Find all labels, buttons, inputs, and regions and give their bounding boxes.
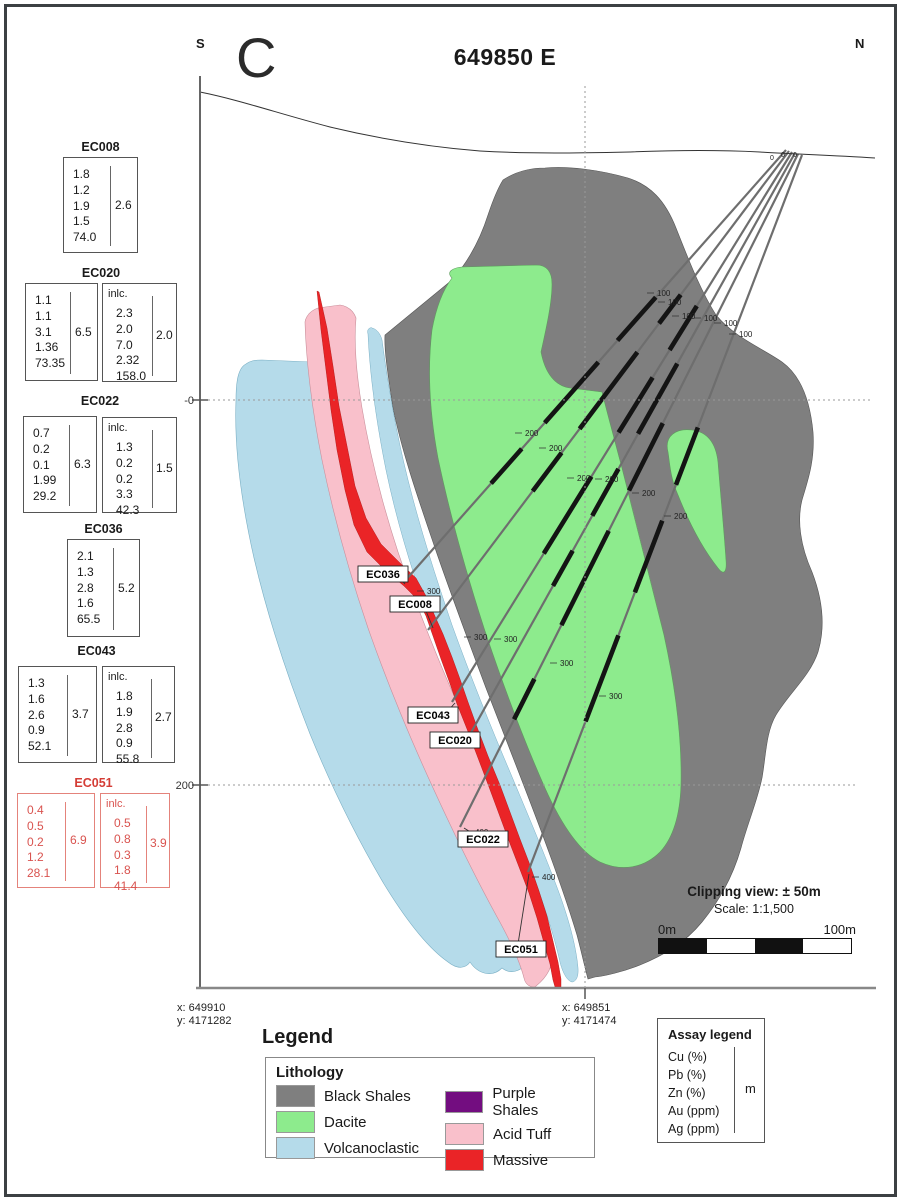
scale-label: Scale: 1:1,500 — [648, 902, 860, 916]
svg-text:300: 300 — [609, 692, 623, 701]
section-letter: C — [236, 30, 276, 86]
assay-values: 1.1 1.1 3.1 1.36 73.35 — [35, 293, 65, 372]
svg-text:200: 200 — [525, 429, 539, 438]
scale-bar-segment — [707, 939, 755, 953]
legend-label: Volcanoclastic — [324, 1140, 419, 1157]
assay-box-ec022-main: 0.7 0.2 0.1 1.99 29.2 6.3 — [23, 416, 97, 513]
svg-text:200: 200 — [176, 780, 194, 792]
included-label: inlc. — [108, 671, 128, 683]
svg-text:400: 400 — [542, 873, 556, 882]
assay-total: 2.0 — [156, 328, 173, 342]
hole-label-ec043: EC043 — [408, 707, 458, 723]
assay-legend: Assay legend Cu (%) Pb (%) Zn (%) Au (pp… — [657, 1018, 765, 1143]
assay-divider — [152, 430, 153, 508]
svg-text:100: 100 — [668, 298, 682, 307]
scale-bar-segment — [803, 939, 851, 953]
assay-divider — [110, 166, 111, 246]
hole-label-ec022: EC022 — [458, 831, 508, 847]
svg-text:EC036: EC036 — [366, 569, 400, 581]
assay-values: 2.1 1.3 2.8 1.6 65.5 — [77, 549, 100, 628]
legend-label: Black Shales — [324, 1088, 411, 1105]
assay-divider — [67, 675, 68, 756]
volcanoclastic-swatch — [276, 1137, 315, 1159]
svg-text:-0: -0 — [184, 395, 194, 407]
assay-box-ec008: 1.8 1.2 1.9 1.5 74.0 2.6 — [63, 157, 138, 253]
svg-text:EC008: EC008 — [398, 599, 432, 611]
purple-shales-swatch — [445, 1091, 483, 1113]
assay-legend-divider — [734, 1047, 735, 1133]
included-label: inlc. — [106, 798, 126, 810]
svg-text:EC051: EC051 — [504, 944, 538, 956]
svg-text:300: 300 — [474, 633, 488, 642]
legend-item: Massive — [445, 1149, 584, 1171]
assay-title-ec020: EC020 — [25, 266, 177, 280]
north-label: N — [855, 36, 864, 51]
assay-box-ec051-incl: inlc. 0.5 0.8 0.3 1.8 41.4 3.9 — [100, 793, 170, 888]
assay-box-ec020-main: 1.1 1.1 3.1 1.36 73.35 6.5 — [25, 283, 98, 381]
svg-text:200: 200 — [605, 475, 619, 484]
svg-text:300: 300 — [427, 587, 441, 596]
legend-item: Black Shales — [276, 1085, 445, 1107]
svg-text:200: 200 — [549, 444, 563, 453]
legend-label: Massive — [493, 1152, 548, 1169]
svg-text:300: 300 — [560, 659, 574, 668]
svg-text:100: 100 — [657, 289, 671, 298]
assay-divider — [151, 679, 152, 758]
legend-item: Volcanoclastic — [276, 1137, 445, 1159]
svg-text:100: 100 — [682, 312, 696, 321]
svg-text:0: 0 — [770, 155, 774, 162]
included-label: inlc. — [108, 288, 128, 300]
assay-box-ec043-incl: inlc. 1.8 1.9 2.8 0.9 55.8 2.7 — [102, 666, 175, 763]
scalebar-max-label: 100m — [823, 922, 856, 937]
assay-divider — [65, 802, 66, 881]
scale-bar-segment — [659, 939, 707, 953]
assay-box-ec043-main: 1.3 1.6 2.6 0.9 52.1 3.7 — [18, 666, 97, 763]
legend-column-1: Black Shales Dacite Volcanoclastic — [276, 1081, 445, 1171]
assay-total: 6.5 — [75, 325, 92, 339]
section-title: 649850 E — [400, 44, 610, 71]
hole-label-ec051: EC051 — [496, 941, 546, 957]
included-label: inlc. — [108, 422, 128, 434]
hole-label-ec020: EC020 — [430, 732, 480, 748]
svg-text:200: 200 — [577, 474, 591, 483]
assay-values: 2.3 2.0 7.0 2.32 158.0 — [116, 306, 146, 385]
cross-section-page: 0 0 0 100 100 100 100 100 100 200 200 20… — [0, 0, 901, 1201]
assay-total: 2.6 — [115, 198, 132, 212]
assay-values: 1.8 1.2 1.9 1.5 74.0 — [73, 167, 96, 246]
assay-total: 1.5 — [156, 461, 173, 475]
scalebar-zero-label: 0m — [658, 922, 676, 937]
assay-values: 0.7 0.2 0.1 1.99 29.2 — [33, 426, 56, 505]
svg-text:100: 100 — [739, 330, 753, 339]
assay-total: 2.7 — [155, 710, 172, 724]
dacite-swatch — [276, 1111, 315, 1133]
scale-bar — [658, 938, 852, 954]
assay-legend-title: Assay legend — [668, 1027, 764, 1042]
legend-label: Acid Tuff — [493, 1126, 551, 1143]
svg-text:100: 100 — [724, 319, 738, 328]
elevation-labels: -0 200 — [176, 395, 194, 792]
assay-box-ec036: 2.1 1.3 2.8 1.6 65.5 5.2 — [67, 539, 140, 637]
assay-box-ec020-incl: inlc. 2.3 2.0 7.0 2.32 158.0 2.0 — [102, 283, 177, 382]
svg-text:EC020: EC020 — [438, 735, 472, 747]
assay-divider — [113, 548, 114, 630]
hole-label-ec008: EC008 — [390, 596, 440, 612]
lithology-title: Lithology — [276, 1064, 584, 1081]
assay-divider — [152, 296, 153, 376]
assay-values: 0.4 0.5 0.2 1.2 28.1 — [27, 803, 50, 882]
coords-left: x: 649910 y: 4171282 — [177, 1002, 231, 1028]
hole-label-ec036: EC036 — [358, 566, 408, 582]
legend-heading: Legend — [262, 1026, 333, 1049]
acid-tuff-swatch — [445, 1123, 484, 1145]
clipping-view-label: Clipping view: ± 50m — [648, 884, 860, 899]
scale-bar-segment — [755, 939, 803, 953]
assay-values: 0.5 0.8 0.3 1.8 41.4 — [114, 816, 137, 895]
legend-item: Dacite — [276, 1111, 445, 1133]
assay-title-ec036: EC036 — [67, 522, 140, 536]
assay-divider — [69, 425, 70, 506]
assay-divider — [70, 292, 71, 374]
surface-topo-line — [200, 92, 875, 158]
svg-text:EC022: EC022 — [466, 834, 500, 846]
assay-total: 5.2 — [118, 581, 135, 595]
svg-text:200: 200 — [674, 512, 688, 521]
scale-block: Clipping view: ± 50m Scale: 1:1,500 0m 1… — [648, 884, 860, 954]
assay-box-ec051-main: 0.4 0.5 0.2 1.2 28.1 6.9 — [17, 793, 95, 888]
south-label: S — [196, 36, 205, 51]
assay-title-ec051: EC051 — [17, 776, 170, 790]
assay-values: 1.3 0.2 0.2 3.3 42.3 — [116, 440, 139, 519]
assay-box-ec022-incl: inlc. 1.3 0.2 0.2 3.3 42.3 1.5 — [102, 417, 177, 513]
assay-title-ec008: EC008 — [63, 140, 138, 154]
legend-label: Dacite — [324, 1114, 367, 1131]
assay-values: 1.8 1.9 2.8 0.9 55.8 — [116, 689, 139, 768]
massive-swatch — [445, 1149, 484, 1171]
legend-item: Acid Tuff — [445, 1123, 584, 1145]
assay-title-ec043: EC043 — [18, 644, 175, 658]
svg-text:100: 100 — [704, 314, 718, 323]
assay-total: 6.9 — [70, 833, 87, 847]
legend-item: Purple Shales — [445, 1085, 584, 1119]
legend-column-2: Purple Shales Acid Tuff Massive — [445, 1081, 584, 1171]
assay-legend-unit: m — [745, 1081, 756, 1096]
assay-divider — [146, 806, 147, 883]
black-shales-swatch — [276, 1085, 315, 1107]
svg-text:300: 300 — [504, 635, 518, 644]
assay-title-ec022: EC022 — [23, 394, 177, 408]
assay-total: 3.7 — [72, 707, 89, 721]
assay-total: 6.3 — [74, 457, 91, 471]
legend-label: Purple Shales — [492, 1085, 584, 1119]
svg-text:0: 0 — [793, 152, 797, 159]
lithology-legend: Lithology Black Shales Dacite Volcanocla… — [265, 1057, 595, 1158]
assay-total: 3.9 — [150, 836, 167, 850]
assay-values: 1.3 1.6 2.6 0.9 52.1 — [28, 676, 51, 755]
svg-text:EC043: EC043 — [416, 710, 450, 722]
coords-right: x: 649851 y: 4171474 — [562, 1002, 616, 1028]
svg-text:200: 200 — [642, 489, 656, 498]
